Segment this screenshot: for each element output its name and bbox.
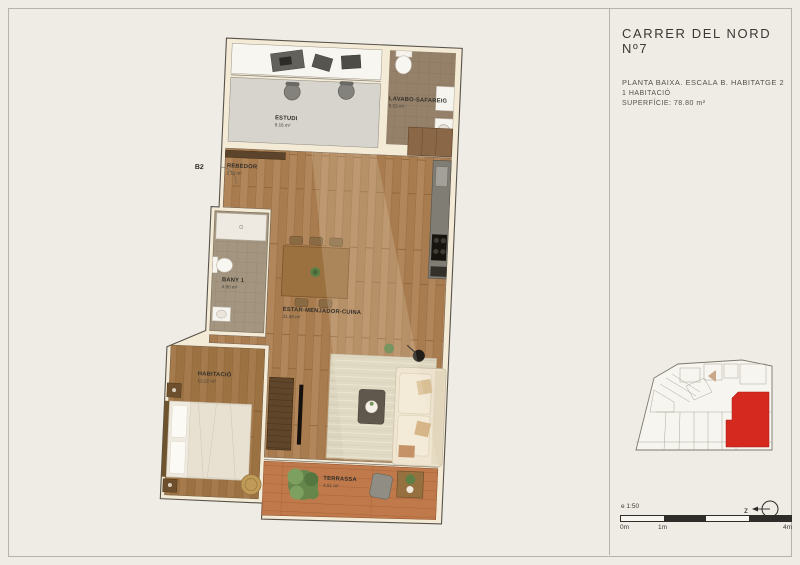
kitchen-sink: [435, 166, 448, 187]
panel-divider: [609, 9, 610, 555]
terrace-chair: [369, 473, 393, 500]
floor-plan-drawing: ESTUDI 9.16 m² LAVABO-SAFAREIG 5.03 m² R…: [148, 30, 478, 540]
bany-shower: [216, 213, 267, 241]
bed: [161, 401, 251, 481]
lavabo-toilet: [395, 50, 412, 74]
floor-plan: ESTUDI 9.16 m² LAVABO-SAFAREIG 5.03 m² R…: [148, 30, 478, 540]
terrace-table: [397, 471, 424, 498]
scale-bar: [620, 515, 792, 522]
basket: [241, 474, 262, 495]
scale-tick: 4m: [783, 524, 792, 531]
surface-area: SUPERFÍCIE: 78.80 m²: [622, 100, 790, 107]
wardrobe: [267, 377, 294, 450]
site-plan-thumbnail: [620, 350, 786, 470]
cooktop: [431, 234, 447, 261]
title-block: CARRER DEL NORD Nº7 PLANTA BAIXA. ESCALA…: [622, 26, 790, 107]
room-area: 31.59 m²: [282, 314, 301, 320]
room-area: 5.03 m²: [389, 103, 405, 109]
plan-descriptor: PLANTA BAIXA. ESCALA B. HABITATGE 2: [622, 78, 790, 87]
rooms-count: 1 HABITACIÓ: [622, 90, 790, 97]
apartment-plan: ESTUDI 9.16 m² LAVABO-SAFAREIG 5.03 m² R…: [160, 36, 463, 527]
scale-legend: e 1:50 0m 1m 4m: [620, 503, 792, 537]
room-area: 4.90 m²: [222, 284, 238, 290]
highlighted-unit: [726, 392, 769, 447]
site-plan-drawing: [620, 350, 786, 470]
scale-tick: 0m: [620, 524, 629, 531]
sheet-title: CARRER DEL NORD Nº7: [622, 26, 790, 56]
room-label: BANY 1: [222, 277, 245, 284]
bany-sink: [212, 307, 231, 322]
room-area: 12.22 m²: [197, 378, 216, 384]
sheet: ESTUDI 9.16 m² LAVABO-SAFAREIG 5.03 m² R…: [0, 0, 800, 565]
room-label: ESTUDI: [275, 115, 298, 122]
room-area: 4.81 m²: [323, 483, 339, 489]
estudi-floor: [228, 77, 381, 147]
room-area: 9.16 m²: [275, 122, 291, 128]
scale-tick: 1m: [658, 524, 667, 531]
scale-label: e 1:50: [621, 503, 639, 510]
unit-label: B2: [195, 164, 204, 171]
room-area: 2.11 m²: [226, 170, 242, 176]
